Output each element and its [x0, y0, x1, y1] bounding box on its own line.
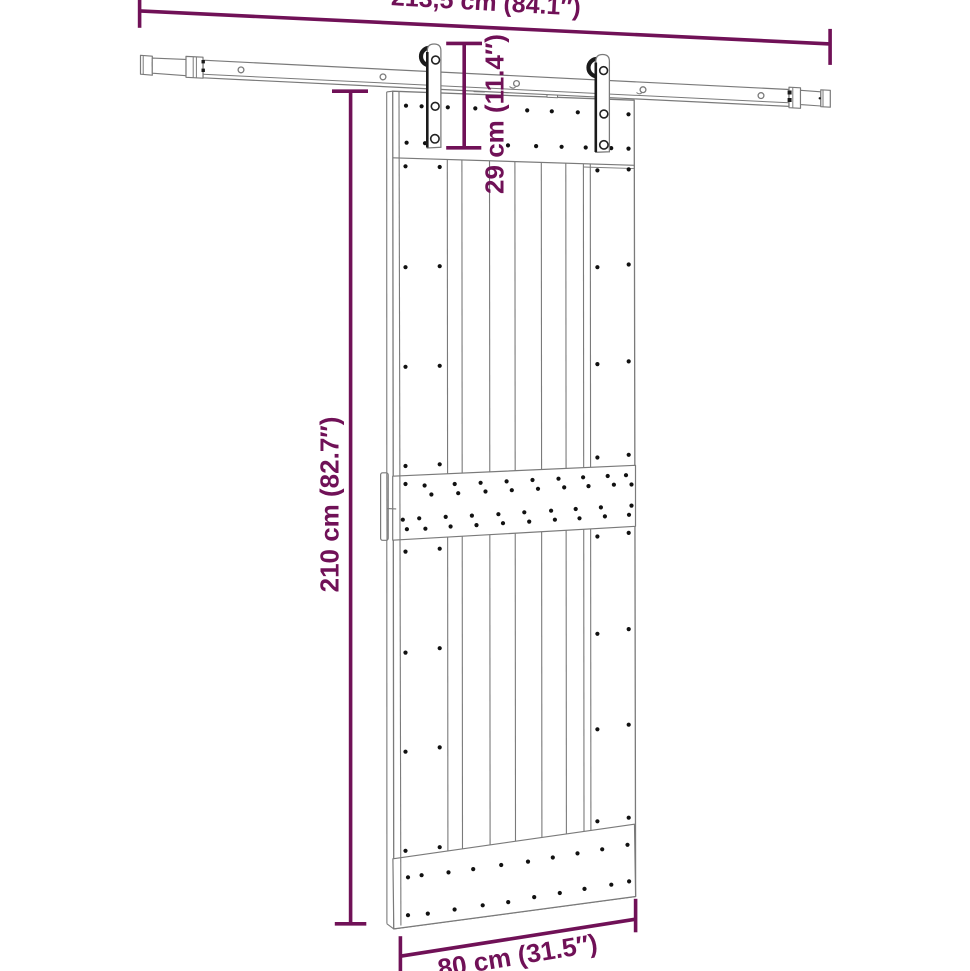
svg-text:210 cm (82.7″): 210 cm (82.7″) [315, 417, 345, 593]
svg-text:29 cm (11.4″): 29 cm (11.4″) [480, 34, 510, 194]
